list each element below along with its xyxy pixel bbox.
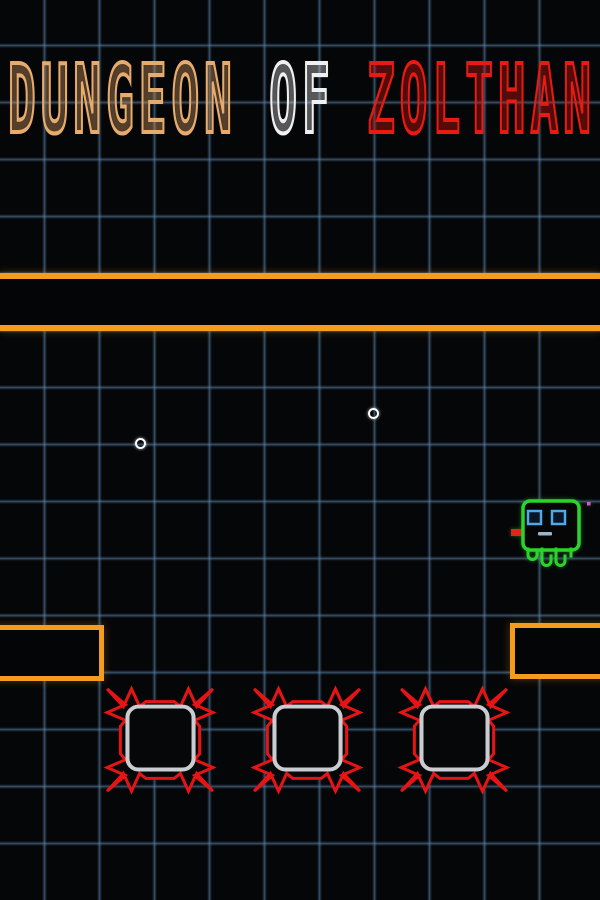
orange-platform-right: [510, 623, 600, 679]
player-head: [523, 501, 579, 550]
pickup-ring-1: [135, 438, 146, 449]
game-viewport[interactable]: DUNGEON OF ZOLTHAN: [0, 0, 600, 900]
player-mouth: [538, 532, 552, 536]
title-word-of: OF: [269, 44, 334, 155]
magenta-pixel: [587, 502, 591, 506]
player-eye-left: [528, 511, 541, 524]
spike-mine-3: [393, 681, 515, 799]
spike-mine-2: [246, 681, 368, 799]
game-title: DUNGEON OF ZOLTHAN: [8, 56, 596, 142]
title-word-zolthan: ZOLTHAN: [367, 44, 596, 155]
pickup-ring-2: [368, 408, 379, 419]
orange-platform-left: [0, 625, 104, 681]
player-character: [503, 496, 593, 584]
orange-wall-band: [0, 273, 600, 331]
title-word-dungeon: DUNGEON: [8, 44, 237, 155]
player-eye-right: [552, 511, 565, 524]
spike-mine-1: [99, 681, 221, 799]
